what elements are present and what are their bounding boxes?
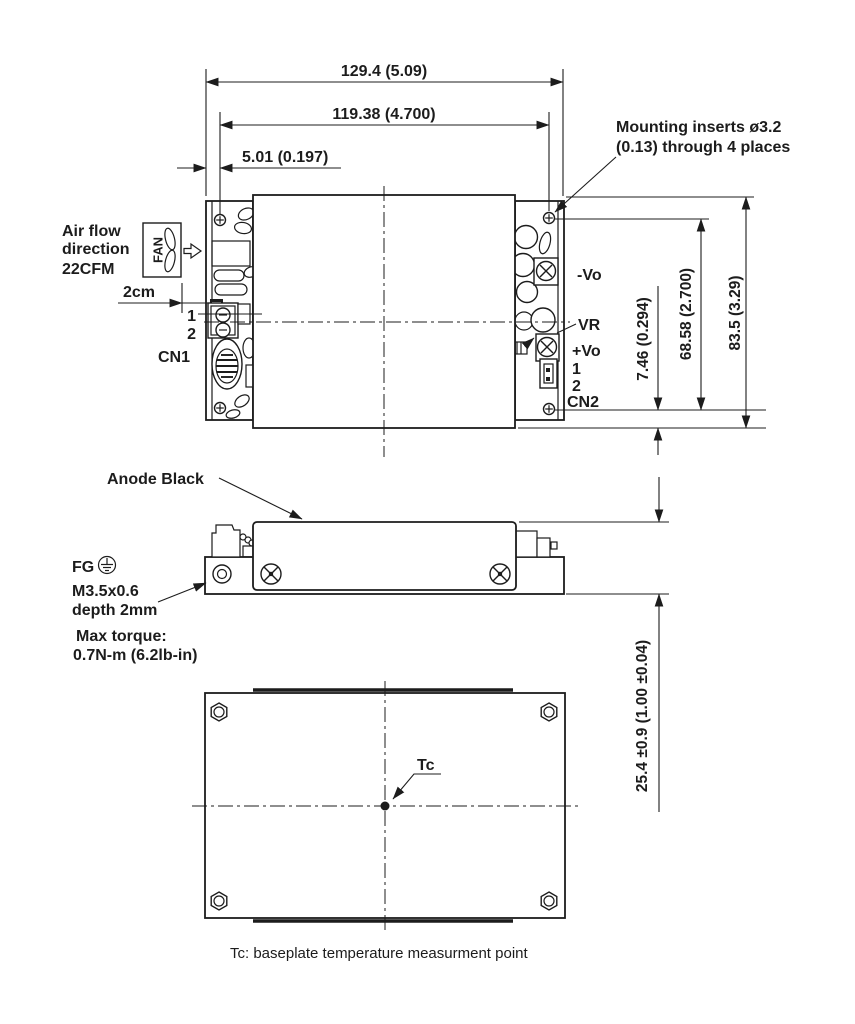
airflow-line1: Air flow (62, 223, 121, 240)
cover-screw-icon (490, 564, 510, 584)
pos-vo-label: +Vo (572, 343, 601, 360)
mounting-screw-icon (215, 403, 226, 414)
fg-label: FG (72, 559, 94, 576)
mounting-note-line2: (0.13) through 4 places (616, 139, 790, 156)
dim-overall-height-label: 25.4 ±0.9 (1.00 ±0.04) (634, 640, 651, 792)
fg-screw-icon (213, 565, 231, 583)
hex-nut-icon (211, 892, 227, 910)
dim-overall-depth-label: 83.5 (3.29) (727, 276, 744, 351)
cn1-label: CN1 (158, 349, 190, 366)
cn1-pin2-label: 2 (187, 326, 196, 343)
fan-icon: FAN (143, 223, 181, 277)
tc-label: Tc (417, 757, 435, 774)
inductor-icon (212, 339, 242, 389)
dim-hole-spacing-h-label: 119.38 (4.700) (332, 106, 435, 123)
airflow-line2: direction (62, 241, 130, 258)
mounting-screw-icon (544, 404, 555, 415)
hex-nut-icon (541, 703, 557, 721)
cn2-pin2-label: 2 (572, 378, 581, 395)
dim-hole-spacing-v-label: 68.58 (2.700) (678, 268, 695, 360)
side-right-components (516, 531, 557, 557)
neg-vo-label: -Vo (577, 267, 602, 284)
anode-label: Anode Black (107, 471, 204, 488)
dim-overall-width: 129.4 (5.09) (206, 63, 563, 196)
airflow-line3: 22CFM (62, 261, 114, 278)
vr-label: VR (578, 317, 601, 334)
pos-vo-terminal-icon (536, 334, 559, 361)
tc-point-icon (381, 802, 390, 811)
torque-line1: Max torque: (76, 628, 167, 645)
cover-screw-icon (261, 564, 281, 584)
torque-line2: 0.7N-m (6.2lb-in) (73, 647, 197, 664)
airflow-arrow-icon (184, 244, 201, 258)
mounting-inserts-note: Mounting inserts ø3.2 (0.13) through 4 p… (555, 119, 790, 212)
mounting-screw-icon (215, 215, 226, 226)
neg-vo-terminal-icon (534, 258, 558, 285)
cn2-pin1-label: 1 (572, 361, 581, 378)
fg-annotation: FG M3.5x0.6 depth 2mm Max torque: 0.7N-m… (72, 557, 206, 665)
drawing-caption: Tc: baseplate temperature measurment poi… (230, 945, 528, 962)
cn2-connector-icon (540, 359, 557, 388)
dim-edge-to-hole: 5.01 (0.197) (177, 149, 341, 168)
drawing-canvas: 129.4 (5.09) 119.38 (4.700) 5.01 (0.197)… (0, 0, 855, 1024)
cn1-pin1-label: 1 (187, 308, 196, 325)
side-left-connector (212, 525, 255, 557)
mechanical-drawing-page: 129.4 (5.09) 119.38 (4.700) 5.01 (0.197)… (0, 0, 855, 1024)
ground-icon (99, 557, 116, 574)
dim-hole-to-edge-v-label: 7.46 (0.294) (635, 297, 652, 381)
fan-label: FAN (150, 237, 165, 263)
dim-hole-to-edge-v: 7.46 (0.294) (635, 286, 658, 455)
dim-edge-to-hole-label: 5.01 (0.197) (242, 149, 328, 166)
cn2-label: CN2 (567, 394, 599, 411)
fan-clearance-label: 2cm (123, 284, 155, 301)
thread-line1: M3.5x0.6 (72, 583, 139, 600)
bottom-view: Tc (192, 681, 578, 931)
hex-nut-icon (211, 703, 227, 721)
mounting-note-line1: Mounting inserts ø3.2 (616, 119, 781, 136)
hex-nut-icon (541, 892, 557, 910)
top-view: 129.4 (5.09) 119.38 (4.700) 5.01 (0.197)… (62, 63, 790, 457)
mounting-screw-icon (544, 213, 555, 224)
anode-cover-side (253, 522, 516, 590)
anode-annotation: Anode Black (107, 471, 302, 519)
dim-overall-width-label: 129.4 (5.09) (341, 63, 427, 80)
thread-line2: depth 2mm (72, 602, 157, 619)
airflow-annotation: Air flow direction 22CFM FAN (62, 223, 201, 278)
